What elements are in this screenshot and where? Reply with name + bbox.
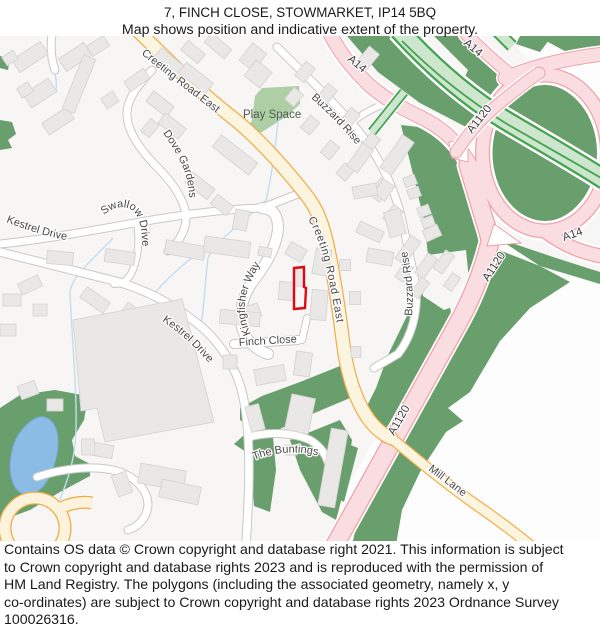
svg-text:Play Space: Play Space bbox=[243, 109, 301, 121]
